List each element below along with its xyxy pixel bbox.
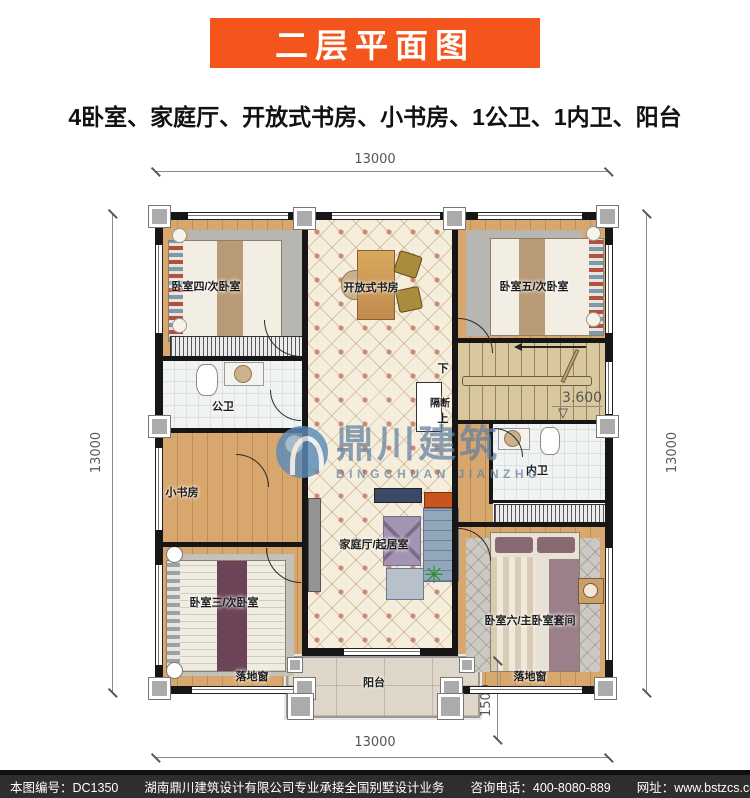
corner-table-top <box>583 583 598 598</box>
window <box>332 212 440 220</box>
dim-tick <box>108 688 118 698</box>
balcony-pillar <box>288 694 313 719</box>
dim-tick <box>642 688 652 698</box>
floor-plan: 13000 13000 13000 13000 1500 <box>0 150 750 775</box>
nightstand <box>586 312 601 327</box>
watermark-en: DINGCHUAN JIANZHU <box>336 467 541 481</box>
watermark-text: 鼎川建筑 DINGCHUAN JIANZHU <box>336 426 541 481</box>
french-window <box>470 686 582 694</box>
wall-innerbath-bottom <box>492 500 608 503</box>
label-bedroom3: 卧室三/次卧室 <box>189 594 258 610</box>
pillar <box>597 206 618 227</box>
footer-serial: 本图编号：DC1350 <box>10 777 118 796</box>
footer-company: 湖南鼎川建筑设计有限公司专业承接全国别墅设计业务 <box>144 777 444 796</box>
balcony-pillar <box>460 658 474 672</box>
wall-study-bottom <box>159 542 306 547</box>
footer-website: 网址：www.bstzcs.com <box>637 777 750 796</box>
bedroom6-window-seat <box>494 504 608 524</box>
window <box>605 362 613 414</box>
dim-right-value: 13000 <box>665 432 680 473</box>
label-public-bath: 公卫 <box>212 398 234 414</box>
pillar <box>149 416 170 437</box>
nightstand <box>172 318 187 333</box>
label-french-window-left: 落地窗 <box>236 668 269 684</box>
dim-line-bottom <box>155 757 609 758</box>
label-stair-down: 下 <box>438 360 449 376</box>
wall-bedroom4-bottom <box>159 356 306 361</box>
wall-bedroom6-top <box>455 522 610 527</box>
watermark-cn: 鼎川建筑 <box>336 426 541 464</box>
dim-line-left <box>112 213 113 693</box>
bedroom6-bed <box>490 532 580 672</box>
dingchuan-logo-icon <box>276 426 328 478</box>
label-open-study: 开放式书房 <box>344 279 399 295</box>
label-bedroom6: 卧室六/主卧室套间 <box>484 612 575 628</box>
dim-bottom-value: 13000 <box>0 735 750 750</box>
stair-arrow-line <box>520 346 586 348</box>
stair-handrail <box>462 376 592 386</box>
pillar <box>597 416 618 437</box>
desk-chair <box>395 286 423 313</box>
speaker <box>166 546 183 563</box>
bed-pillow <box>537 537 575 553</box>
toilet <box>196 364 218 396</box>
dim-top-value: 13000 <box>0 152 750 167</box>
wall-hall-bottom-right <box>420 648 458 656</box>
dim-tick <box>108 209 118 219</box>
wall-hall-bottom-left <box>302 648 344 656</box>
footer-bar: 本图编号：DC1350 湖南鼎川建筑设计有限公司专业承接全国别墅设计业务 咨询电… <box>0 775 750 798</box>
balcony-door-threshold <box>344 648 420 656</box>
label-small-study: 小书房 <box>166 484 199 500</box>
label-bedroom4: 卧室四/次卧室 <box>171 278 240 294</box>
bed-runner <box>217 561 247 671</box>
balcony-pillar <box>438 694 463 719</box>
window <box>605 245 613 333</box>
level-triangle-icon: ▽ <box>558 405 568 421</box>
tv-console <box>308 498 321 592</box>
bed-pillow <box>495 537 533 553</box>
page-title: 二层平面图 <box>275 19 475 67</box>
label-french-window-right: 落地窗 <box>514 668 547 684</box>
pillar <box>149 206 170 227</box>
pillar <box>294 208 315 229</box>
window <box>478 212 582 220</box>
french-window <box>192 686 300 694</box>
label-balcony: 阳台 <box>363 674 385 690</box>
footer-phone: 咨询电话：400-8080-889 <box>470 777 610 796</box>
window <box>188 212 288 220</box>
label-bedroom5: 卧室五/次卧室 <box>499 278 568 294</box>
nightstand <box>172 228 187 243</box>
level-value: 3.600 <box>562 390 602 406</box>
nightstand <box>586 226 601 241</box>
bedroom3-bed <box>166 560 286 672</box>
dim-left-value: 13000 <box>89 432 104 473</box>
pillar <box>444 208 465 229</box>
toilet <box>540 427 560 455</box>
sink <box>234 365 252 383</box>
pillar <box>595 678 616 699</box>
label-partition: 隔断 <box>430 395 450 410</box>
bed-headboard <box>167 561 180 671</box>
window <box>155 448 163 530</box>
window <box>155 565 163 665</box>
watermark: 鼎川建筑 DINGCHUAN JIANZHU <box>276 426 541 481</box>
dim-line-right <box>646 213 647 693</box>
plant: ✳ <box>424 564 444 588</box>
window <box>605 548 613 660</box>
pillar <box>149 678 170 699</box>
dim-tick <box>642 209 652 219</box>
label-family-hall: 家庭厅/起居室 <box>339 536 408 552</box>
title-banner: 二层平面图 <box>210 18 540 68</box>
speaker <box>166 662 183 679</box>
plan-feature-summary: 4卧室、家庭厅、开放式书房、小书房、1公卫、1内卫、阳台 <box>0 98 750 132</box>
stair-arrow-head <box>514 343 522 351</box>
hall-desk <box>374 488 422 503</box>
balcony-pillar <box>288 658 302 672</box>
coffee-table <box>386 568 424 600</box>
window <box>155 245 163 333</box>
dim-line-balcony <box>497 660 498 740</box>
dim-line-top <box>155 171 609 172</box>
